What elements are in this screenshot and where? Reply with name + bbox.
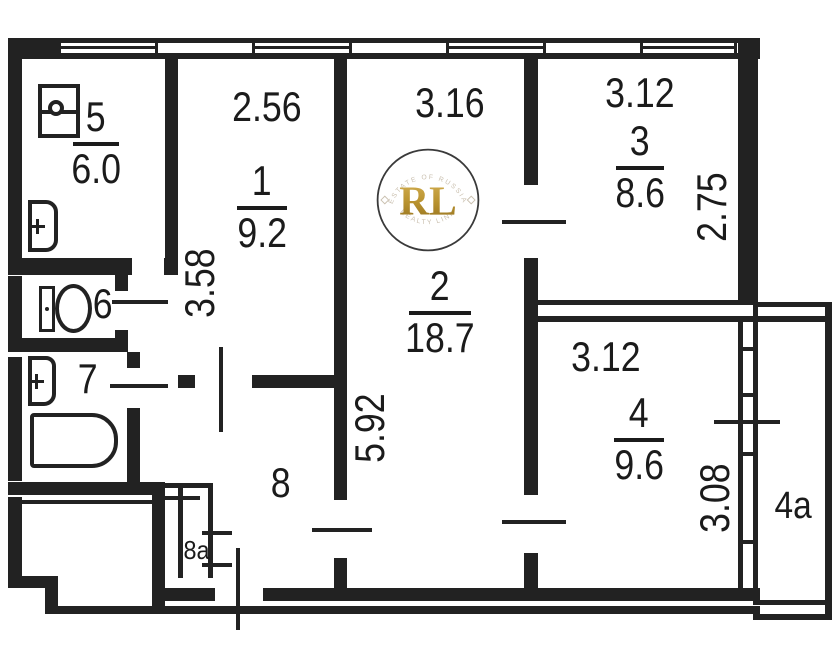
wall-room1-hall [178, 375, 195, 388]
sink-icon [28, 200, 58, 252]
window [640, 43, 737, 53]
right-exterior-wall [738, 38, 758, 305]
balcony-wall [753, 600, 832, 605]
balcony-wall [753, 614, 832, 620]
room7-label: 7 [68, 358, 108, 401]
room-number: 4a [774, 485, 811, 528]
room-area: 9.2 [237, 212, 287, 255]
entrance-door-tick [236, 548, 240, 630]
balcony-wall [753, 302, 832, 307]
dim-value: 2.75 [691, 172, 734, 241]
window-sash [738, 393, 758, 397]
room1-label: 1 9.2 [222, 160, 302, 255]
left-exterior-wall [8, 38, 22, 582]
room-area: 6.0 [71, 148, 121, 191]
dim-value: 3.12 [605, 72, 674, 115]
balcony-wall [753, 316, 832, 322]
door-tick-room1 [219, 347, 223, 432]
wall-bath-bottom [8, 482, 165, 495]
dim-room1-depth: 3.58 [175, 208, 225, 358]
room-area: 8.6 [615, 172, 665, 215]
bottom-outer-wall [55, 606, 760, 614]
hall-niche-wall [152, 495, 165, 606]
dim-value: 3.12 [571, 336, 640, 379]
top-exterior-wall [8, 38, 760, 59]
window-sash [738, 540, 758, 544]
watermark-svg: ESTATE OF RUSSIA REALTY LINK RL [374, 146, 482, 254]
wall-room5-bottom [8, 258, 132, 275]
room6-label: 6 [83, 283, 123, 326]
dim-value: 2.56 [232, 86, 301, 129]
dim-room2-width: 3.16 [375, 78, 525, 128]
room-number: 1 [252, 160, 272, 203]
wall-bath-right [127, 352, 140, 368]
room-number: 7 [78, 358, 98, 401]
wall-room1-hall [252, 375, 347, 388]
wall-hall-room2 [334, 558, 347, 592]
niche-wall [22, 500, 152, 504]
dim-room3-width: 3.12 [565, 68, 715, 118]
closet-tick [165, 496, 200, 500]
room-number: 6 [93, 283, 113, 326]
sink-icon [28, 356, 56, 406]
room8a-label: 8a [178, 535, 214, 566]
room5-label: 5 6.0 [56, 96, 136, 191]
wall-wc-bath [8, 338, 128, 352]
wall-segment [543, 43, 640, 53]
room-number: 3 [630, 120, 650, 163]
room4-label: 4 9.6 [599, 392, 679, 487]
bottom-wall [165, 588, 215, 601]
balcony-wall [825, 302, 832, 620]
wall-room3-room4 [538, 300, 753, 322]
room-area: 9.6 [614, 444, 664, 487]
dim-room1-width: 2.56 [192, 82, 342, 132]
wall-segment [349, 43, 446, 53]
dim-room2-depth: 5.92 [345, 353, 395, 503]
dim-room3-depth: 2.75 [687, 132, 737, 282]
dim-value: 3.08 [694, 463, 737, 532]
wall-room2-room4 [524, 553, 538, 592]
window-sash [738, 347, 758, 351]
dim-room4-width: 3.12 [531, 332, 681, 382]
door-tick-room4 [502, 520, 566, 524]
sink-cross [36, 219, 39, 234]
wall-segment [155, 43, 252, 53]
watermark-seal: ESTATE OF RUSSIA REALTY LINK RL [374, 146, 482, 254]
wall-room2-room3 [524, 58, 538, 185]
room-number: 2 [430, 265, 450, 308]
dim-value: 3.58 [179, 248, 222, 317]
bottom-left-step [45, 576, 58, 614]
room2-label: 2 18.7 [395, 265, 485, 360]
door-tick-room2 [312, 528, 372, 532]
floor-plan: 5 6.0 1 9.2 2 18.7 3 8.6 4 9.6 6 7 8 8a … [0, 0, 837, 650]
room-area: 18.7 [405, 317, 474, 360]
room-number: 5 [86, 96, 106, 139]
toilet-dot [45, 307, 49, 311]
door-tick-room3 [502, 220, 566, 224]
room-number: 8a [183, 535, 209, 566]
room8-label: 8 [261, 462, 301, 505]
window-sash [738, 452, 758, 456]
bathtub-icon [30, 413, 118, 468]
seal-initials: RL [399, 177, 457, 223]
door-tick-bath [110, 384, 168, 388]
window [252, 43, 349, 53]
sink-cross [35, 374, 38, 389]
toilet-tank-icon [39, 286, 55, 332]
dim-room4-depth: 3.08 [690, 423, 740, 573]
room-number: 8 [271, 462, 291, 505]
window [58, 43, 155, 53]
room-number: 4 [629, 392, 649, 435]
dim-value: 3.16 [415, 82, 484, 125]
room3-label: 3 8.6 [600, 120, 680, 215]
dim-value: 5.92 [349, 393, 392, 462]
room4a-label: 4a [768, 485, 818, 528]
window [446, 43, 543, 53]
